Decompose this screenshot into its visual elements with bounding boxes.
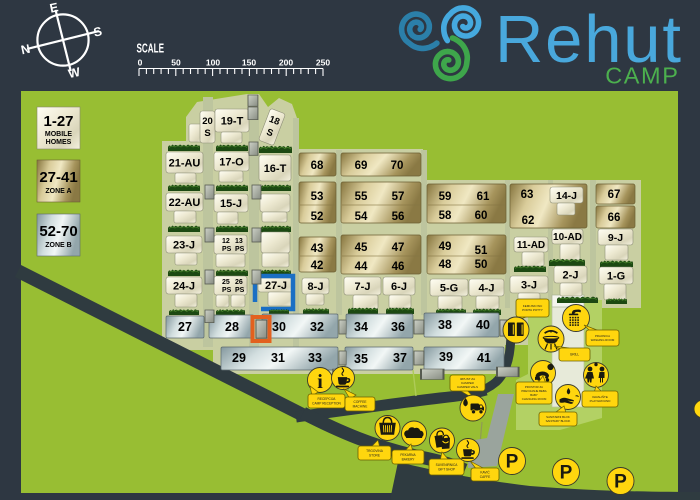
svg-text:69: 69 bbox=[355, 160, 368, 172]
svg-text:21-AU: 21-AU bbox=[169, 157, 201, 169]
svg-text:MOBILE: MOBILE bbox=[45, 131, 73, 138]
svg-text:CAMP RECEPTION: CAMP RECEPTION bbox=[312, 401, 341, 405]
svg-text:9-J: 9-J bbox=[608, 232, 623, 244]
svg-text:46: 46 bbox=[392, 261, 405, 273]
svg-text:27: 27 bbox=[178, 320, 192, 334]
svg-text:61: 61 bbox=[477, 191, 490, 203]
svg-text:57: 57 bbox=[392, 191, 405, 203]
svg-text:3-J: 3-J bbox=[521, 279, 537, 291]
svg-text:KAVIĆ: KAVIĆ bbox=[480, 469, 490, 474]
svg-text:38: 38 bbox=[438, 318, 452, 332]
svg-text:24-J: 24-J bbox=[173, 280, 195, 292]
svg-text:49: 49 bbox=[439, 241, 452, 253]
svg-text:7-J: 7-J bbox=[355, 281, 371, 293]
svg-text:GRILL: GRILL bbox=[570, 353, 579, 357]
svg-text:TRGOVINA: TRGOVINA bbox=[366, 449, 384, 453]
svg-text:40: 40 bbox=[476, 318, 490, 332]
svg-text:23-J: 23-J bbox=[173, 239, 195, 251]
svg-text:i: i bbox=[317, 371, 323, 393]
svg-text:1-27: 1-27 bbox=[43, 113, 73, 130]
svg-text:PEKARNA: PEKARNA bbox=[400, 453, 416, 457]
svg-text:41: 41 bbox=[477, 351, 491, 365]
svg-text:50: 50 bbox=[475, 259, 488, 271]
svg-text:14-J: 14-J bbox=[556, 190, 577, 202]
svg-text:10-AD: 10-AD bbox=[553, 232, 582, 243]
svg-text:1-G: 1-G bbox=[607, 270, 625, 282]
svg-text:16-T: 16-T bbox=[264, 163, 287, 175]
svg-text:P: P bbox=[614, 472, 627, 493]
svg-text:PS: PS bbox=[235, 287, 245, 294]
svg-text:67: 67 bbox=[608, 189, 621, 201]
svg-text:2-J: 2-J bbox=[563, 269, 579, 281]
svg-text:CAMPER VALS: CAMPER VALS bbox=[457, 385, 478, 389]
svg-text:30: 30 bbox=[272, 320, 286, 334]
svg-text:GIFT SHOP: GIFT SHOP bbox=[438, 467, 455, 471]
svg-text:19-T: 19-T bbox=[221, 115, 244, 127]
svg-text:54: 54 bbox=[355, 211, 368, 223]
svg-text:48: 48 bbox=[439, 259, 452, 271]
svg-text:27-J: 27-J bbox=[265, 280, 287, 292]
svg-text:5-G: 5-G bbox=[440, 282, 458, 294]
svg-text:PS: PS bbox=[222, 287, 232, 294]
svg-text:17-O: 17-O bbox=[219, 156, 244, 168]
svg-text:P: P bbox=[560, 463, 573, 484]
svg-text:26: 26 bbox=[235, 279, 243, 286]
svg-text:12: 12 bbox=[222, 238, 230, 245]
svg-text:BAKERY: BAKERY bbox=[402, 457, 416, 461]
svg-text:60: 60 bbox=[475, 210, 488, 222]
svg-text:25: 25 bbox=[222, 279, 230, 286]
svg-text:SANITARY BLOCK: SANITARY BLOCK bbox=[546, 419, 571, 423]
svg-text:STORE: STORE bbox=[369, 453, 380, 457]
svg-text:CHANGING ROOM: CHANGING ROOM bbox=[522, 397, 547, 401]
svg-text:MACHINE: MACHINE bbox=[353, 404, 368, 408]
svg-text:PORTA POTTY: PORTA POTTY bbox=[522, 308, 543, 312]
svg-text:0: 0 bbox=[138, 58, 143, 68]
svg-text:68: 68 bbox=[311, 160, 324, 172]
svg-text:58: 58 bbox=[439, 210, 452, 222]
svg-text:47: 47 bbox=[392, 242, 405, 254]
svg-text:8-J: 8-J bbox=[308, 281, 324, 293]
svg-text:36: 36 bbox=[391, 320, 405, 334]
svg-text:CAMP: CAMP bbox=[605, 63, 679, 89]
svg-text:32: 32 bbox=[310, 320, 324, 334]
svg-text:4-J: 4-J bbox=[479, 282, 495, 294]
svg-text:51: 51 bbox=[475, 245, 488, 257]
svg-text:29: 29 bbox=[232, 351, 246, 365]
svg-text:S: S bbox=[204, 128, 210, 139]
svg-text:13: 13 bbox=[235, 238, 243, 245]
svg-text:RECEPCIJA: RECEPCIJA bbox=[318, 397, 337, 401]
svg-text:COFFEE: COFFEE bbox=[354, 400, 367, 404]
svg-text:CAFFE: CAFFE bbox=[480, 475, 490, 479]
svg-text:55: 55 bbox=[355, 191, 368, 203]
svg-text:PLAYGROUND: PLAYGROUND bbox=[590, 399, 612, 403]
svg-text:31: 31 bbox=[271, 351, 285, 365]
svg-text:62: 62 bbox=[522, 215, 535, 227]
svg-text:ZONE A: ZONE A bbox=[45, 188, 71, 195]
svg-text:52-70: 52-70 bbox=[39, 223, 77, 240]
svg-text:66: 66 bbox=[608, 212, 621, 224]
svg-text:44: 44 bbox=[355, 261, 368, 273]
svg-text:63: 63 bbox=[521, 189, 534, 201]
svg-text:PS: PS bbox=[222, 246, 232, 253]
svg-text:33: 33 bbox=[308, 351, 322, 365]
svg-text:PS: PS bbox=[235, 246, 245, 253]
svg-text:56: 56 bbox=[392, 211, 405, 223]
svg-text:45: 45 bbox=[355, 242, 368, 254]
svg-text:SUVENIRNICA: SUVENIRNICA bbox=[436, 463, 459, 467]
svg-text:53: 53 bbox=[311, 191, 324, 203]
svg-text:SCALE: SCALE bbox=[137, 41, 165, 56]
svg-text:20: 20 bbox=[202, 116, 213, 127]
svg-text:43: 43 bbox=[311, 243, 324, 255]
svg-text:250: 250 bbox=[316, 58, 330, 68]
svg-text:ZONE B: ZONE B bbox=[45, 242, 71, 249]
svg-text:70: 70 bbox=[391, 160, 404, 172]
svg-text:15-J: 15-J bbox=[220, 198, 242, 210]
svg-text:52: 52 bbox=[311, 211, 324, 223]
svg-text:HOMES: HOMES bbox=[46, 139, 72, 146]
svg-text:200: 200 bbox=[279, 58, 293, 68]
svg-text:39: 39 bbox=[439, 350, 453, 364]
svg-text:37: 37 bbox=[393, 351, 407, 365]
svg-text:35: 35 bbox=[354, 352, 368, 366]
svg-text:WASHING ROOM: WASHING ROOM bbox=[591, 338, 615, 342]
svg-text:IGRALIŠTE: IGRALIŠTE bbox=[592, 394, 608, 399]
svg-text:P: P bbox=[506, 452, 519, 473]
svg-text:34: 34 bbox=[354, 320, 368, 334]
svg-text:28: 28 bbox=[225, 320, 239, 334]
svg-text:22-AU: 22-AU bbox=[169, 197, 201, 209]
svg-text:59: 59 bbox=[439, 191, 452, 203]
svg-text:42: 42 bbox=[311, 260, 324, 272]
svg-text:50: 50 bbox=[171, 58, 181, 68]
svg-text:6-J: 6-J bbox=[391, 281, 407, 293]
svg-text:11-AD: 11-AD bbox=[517, 240, 545, 251]
svg-text:27-41: 27-41 bbox=[39, 169, 77, 186]
svg-text:100: 100 bbox=[206, 58, 220, 68]
svg-text:150: 150 bbox=[242, 58, 256, 68]
